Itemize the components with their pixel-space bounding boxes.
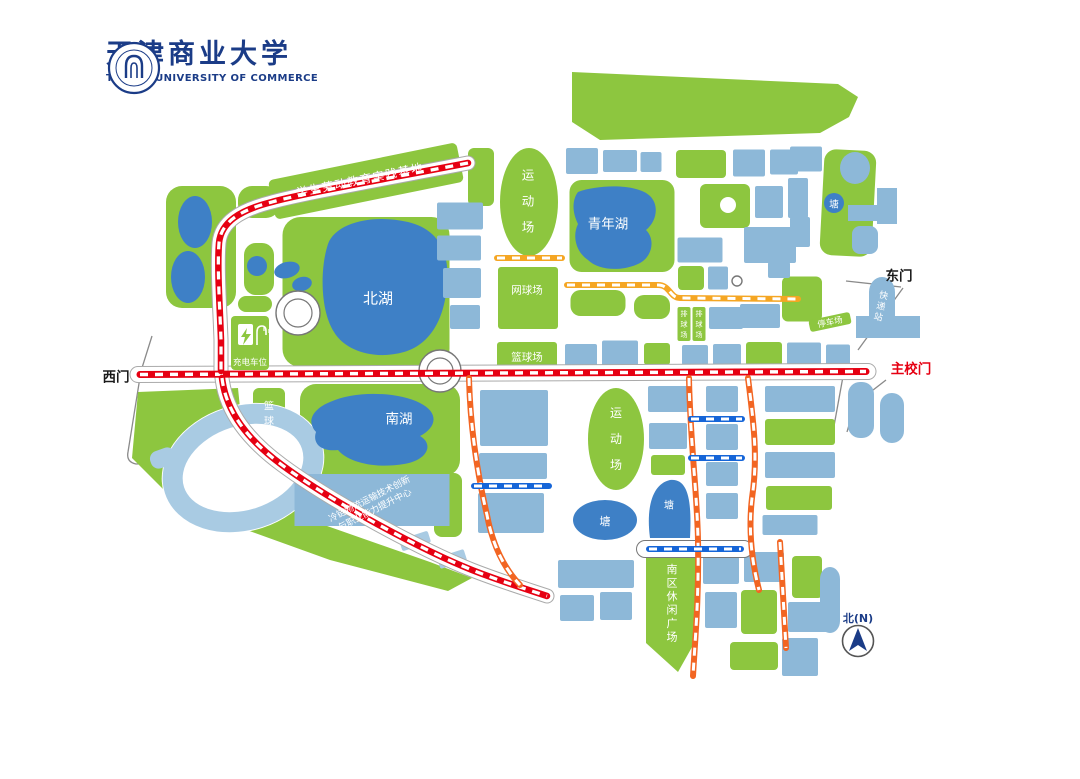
building <box>603 150 637 172</box>
building <box>706 462 738 486</box>
green-area <box>746 342 782 366</box>
green-area <box>676 150 726 178</box>
tennis-court-label: 网球场 <box>511 284 543 297</box>
building <box>443 268 481 298</box>
university-logo: 天津商业大学 TIANJIN UNIVERSITY OF COMMERCE <box>106 40 318 84</box>
building <box>755 186 783 218</box>
building <box>703 556 739 584</box>
green-area <box>571 290 626 316</box>
building <box>852 226 878 254</box>
north-lake-label: 北湖 <box>363 289 393 307</box>
building <box>787 343 821 366</box>
basketball-court-center-label: 篮球场 <box>511 351 543 364</box>
building <box>826 345 850 366</box>
building <box>708 267 728 290</box>
south-plaza-label: 南区休闲广场 <box>667 563 678 644</box>
building <box>479 453 547 479</box>
green-area <box>741 590 777 634</box>
building <box>437 236 481 261</box>
building <box>682 345 708 365</box>
building <box>566 148 598 174</box>
volleyball-court-1-label: 排球场 <box>681 309 688 339</box>
building <box>763 515 818 535</box>
lake <box>323 219 448 355</box>
building <box>480 390 548 446</box>
building <box>744 227 796 263</box>
east-gate-label: 东门 <box>886 268 913 285</box>
building <box>765 386 835 412</box>
main-gate-label: 主校门 <box>891 361 932 378</box>
building <box>820 567 840 633</box>
sports-field-north-label: 运动场 <box>522 167 535 234</box>
pond-southeast-label: 塘 <box>664 499 674 512</box>
building <box>706 386 738 412</box>
roundabout <box>732 276 742 286</box>
courtyard <box>720 197 736 213</box>
west-gate-label: 西门 <box>103 369 130 386</box>
building <box>602 341 638 366</box>
building <box>600 592 632 620</box>
campus-map: 西门东门主校门北湖南湖青年湖运动场运动场网球场篮球场篮球场塘塘塘停车场快递站充电… <box>0 0 1080 779</box>
building <box>565 344 597 366</box>
building <box>790 147 822 172</box>
building <box>558 560 634 588</box>
university-seal-icon <box>106 40 162 96</box>
sports-field-south-label: 运动场 <box>610 406 622 472</box>
green-area <box>765 419 835 445</box>
green-area <box>572 72 858 140</box>
building <box>437 203 483 230</box>
basketball-court-west-label: 篮球场 <box>264 400 274 443</box>
youth-lake-label: 青年湖 <box>588 217 629 233</box>
green-area <box>644 343 670 365</box>
building <box>641 152 662 172</box>
building <box>788 178 808 218</box>
building <box>848 382 874 438</box>
green-area <box>730 642 778 670</box>
building <box>648 386 688 412</box>
green-area <box>238 296 272 312</box>
building <box>713 344 741 366</box>
pond <box>171 251 205 303</box>
building <box>709 307 743 329</box>
building <box>450 305 480 329</box>
building <box>649 423 687 449</box>
pond <box>247 256 267 276</box>
green-area <box>766 486 832 510</box>
pond <box>178 196 212 248</box>
green-area <box>792 556 822 598</box>
green-area <box>634 295 670 319</box>
green-area <box>651 455 685 475</box>
compass-north-label: 北(N) <box>843 611 873 625</box>
building <box>705 592 737 628</box>
roundabout <box>276 291 320 335</box>
building <box>678 238 723 263</box>
south-lake-label: 南湖 <box>386 412 413 428</box>
building <box>768 262 790 278</box>
pond-northeast-label: 塘 <box>829 198 839 210</box>
pond-south-label: 塘 <box>600 514 611 528</box>
building <box>740 304 780 328</box>
building <box>765 452 835 478</box>
building <box>790 217 810 247</box>
building <box>560 595 594 621</box>
building <box>706 493 738 519</box>
green-area <box>678 266 704 290</box>
green-area <box>498 267 558 329</box>
building <box>840 152 870 184</box>
building <box>877 188 897 224</box>
building <box>733 150 765 177</box>
charging-space-label: 充电车位 <box>233 357 268 368</box>
volleyball-court-2-label: 排球场 <box>696 309 703 339</box>
building <box>880 393 904 443</box>
campus-map-page: 西门东门主校门北湖南湖青年湖运动场运动场网球场篮球场篮球场塘塘塘停车场快递站充电… <box>0 0 1080 779</box>
building <box>706 424 738 450</box>
